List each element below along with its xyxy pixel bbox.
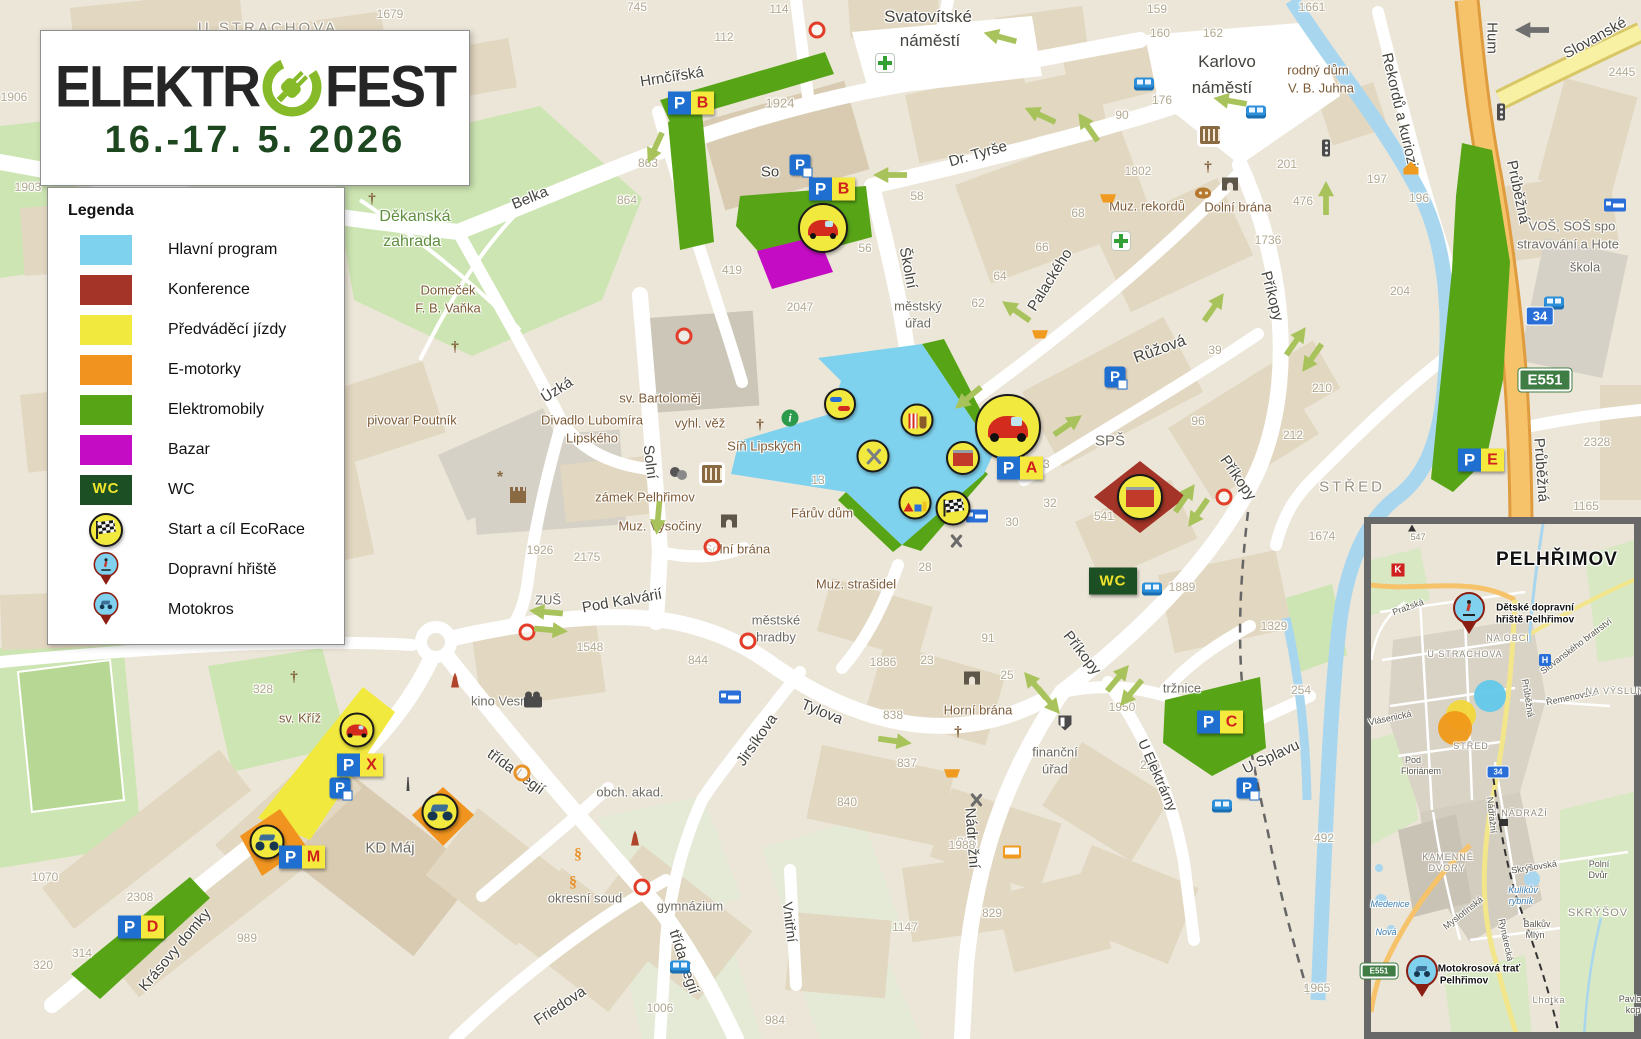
parking-marker-A: PA (997, 457, 1043, 480)
map-label: 1147 (892, 920, 918, 934)
parking-letter: M (302, 846, 325, 869)
tower-icon (451, 673, 459, 688)
event-circle-car (975, 394, 1041, 460)
map-label: SKRÝŠOV (1568, 907, 1628, 919)
map-label: 838 (883, 708, 903, 722)
map-label: 25 (1000, 668, 1013, 682)
map-label: 1070 (32, 870, 59, 884)
parking-marker-M: PM (279, 846, 325, 869)
event-circle-car (340, 713, 375, 748)
map-label: pivovar Poutník (367, 413, 457, 428)
parking-marker-D: PD (118, 916, 164, 939)
cross-icon: † (954, 726, 962, 741)
summit-icon (1408, 525, 1416, 532)
map-label: 1889 (1169, 580, 1196, 594)
map-label: 1965 (1304, 981, 1331, 995)
map-label: 30 (1005, 515, 1018, 529)
event-circle-moto (422, 794, 459, 831)
no-entry-ring (1216, 489, 1233, 506)
map-label: 419 (722, 263, 742, 277)
map-label: Motokrosová trať (1438, 964, 1521, 975)
legend-swatch-conference (80, 275, 132, 305)
legend-swatch-main-program (80, 235, 132, 265)
map-label: Lhotka (1532, 995, 1565, 1005)
cross-icon: † (1204, 161, 1212, 176)
traffic-playground-pin (1452, 592, 1486, 638)
map-label: hradby (756, 630, 796, 645)
map-label: U STRACHOVA (1427, 649, 1502, 659)
map-label: gymnázium (657, 899, 723, 914)
map-label: 476 (1293, 194, 1313, 208)
map-label: náměstí (900, 31, 960, 51)
map-label: 1548 (577, 640, 604, 654)
map-label: Pod (1405, 755, 1421, 765)
parking-marker-B: PB (668, 92, 714, 115)
map-label: Síň Lipských (727, 439, 801, 454)
legend-swatch-test-rides (80, 315, 132, 345)
event-circle-flag (936, 491, 971, 526)
map-label: Příkopy (1060, 628, 1105, 679)
map-label: 314 (72, 946, 92, 960)
map-label: městské (752, 613, 800, 628)
map-label: Domeček (421, 283, 476, 298)
map-label: Polní (1589, 859, 1610, 869)
map-label: Růžová (1131, 332, 1188, 367)
no-entry-ring (514, 765, 531, 782)
basket-icon (1100, 192, 1116, 203)
direction-arrow (1021, 101, 1059, 130)
map-label: 197 (1367, 172, 1387, 186)
legend-item-label: Konference (168, 281, 250, 299)
direction-arrow (1072, 108, 1105, 145)
castle-icon (510, 491, 526, 503)
map-label: 32 (1043, 496, 1056, 510)
no-entry-ring (740, 633, 757, 650)
legend-item-label: Hlavní program (168, 241, 277, 259)
motocross-pin (93, 592, 120, 628)
map-label: 864 (617, 193, 637, 207)
parking-letter: A (1020, 457, 1043, 480)
map-label: Vlásenická (1368, 709, 1413, 728)
shield-icon (1059, 716, 1072, 731)
gate-icon (964, 672, 980, 685)
map-label: V. B. Juhna (1288, 81, 1354, 96)
parking-p-icon: P (1458, 449, 1481, 472)
parking-p-icon: P (668, 92, 691, 115)
traffic-playground-pin (93, 552, 120, 588)
map-label: 2328 (1584, 435, 1611, 449)
star-icon: * (497, 470, 503, 486)
map-label: 114 (769, 2, 788, 16)
event-circle-toys (899, 487, 932, 520)
section-icon: § (569, 875, 577, 891)
map-label: 2445 (1609, 65, 1636, 79)
cross-icon: † (368, 193, 376, 208)
map-label: Myslotínská (1441, 894, 1485, 931)
road-badge-H: H (1539, 654, 1551, 666)
map-label: 68 (1071, 206, 1084, 220)
map-label: VOŠ, SOŠ spo (1529, 219, 1616, 234)
map-label: Rynárecká (1497, 918, 1516, 962)
pharm-icon (876, 54, 894, 72)
legend-item: Motokros (68, 590, 344, 630)
tower-icon (631, 831, 639, 846)
legend-item: Konference (68, 270, 344, 310)
road-badge-K: K (1392, 564, 1405, 577)
map-label: Pražská (1391, 597, 1425, 618)
map-label: Úzká (538, 374, 576, 407)
parking-marker-E: PE (1458, 449, 1504, 472)
bed-icon (719, 691, 741, 704)
map-label: STŘED (1453, 741, 1489, 751)
map-label: Příkopy (1257, 269, 1287, 323)
rest-icon (947, 533, 963, 549)
map-label: Lipského (566, 431, 618, 446)
theater-icon (670, 467, 680, 477)
map-label: NA VÝSLUNÍ (1585, 686, 1641, 696)
map-label: Vnitřní (780, 901, 801, 943)
map-label: U Splavu (1240, 736, 1302, 777)
map-label: Hum (1484, 22, 1501, 54)
ecorace-start-icon (80, 511, 132, 549)
map-label: Floriánem (1401, 766, 1441, 776)
gate-icon (1222, 178, 1238, 191)
map-label: Průběžná (1530, 437, 1551, 502)
legend-item-label: Start a cíl EcoRace (168, 521, 305, 539)
map-label: 328 (253, 682, 273, 696)
legend-item: Start a cíl EcoRace (68, 510, 344, 550)
map-label: 840 (837, 795, 857, 809)
map-label: 39 (1208, 343, 1221, 357)
map-label: městský (894, 299, 942, 314)
map-label: Hrnčířská (639, 64, 705, 91)
map-label: 1661 (1299, 0, 1326, 14)
bus-icon (1142, 583, 1162, 596)
legend-item-label: Dopravní hřiště (168, 561, 277, 579)
basket-icon (944, 767, 960, 778)
monitor-icon (1003, 846, 1021, 859)
legend-title: Legenda (68, 202, 344, 220)
map-label: 196 (1409, 191, 1429, 205)
bed-icon (1604, 199, 1626, 212)
map-label: Jirsíkova (733, 711, 781, 769)
direction-arrow (1318, 181, 1334, 215)
section-icon: § (574, 847, 582, 863)
map-label: Balkův (1523, 919, 1550, 929)
map-label: Horní brána (944, 703, 1013, 718)
map-label: 1006 (647, 1001, 674, 1015)
map-label: U Elektrárny (1135, 737, 1181, 814)
map-label: STŘED (1319, 479, 1385, 496)
map-label: Pod Kalvárií (581, 586, 664, 617)
map-label: SPŠ (1095, 433, 1125, 450)
legend-item: Hlavní program (68, 230, 344, 270)
legend-wc-badge: WC (80, 475, 132, 505)
map-label: 160 (1150, 26, 1170, 40)
map-label: 90 (1115, 108, 1128, 122)
map-label: zámek Pelhřimov (595, 490, 695, 505)
parking-marker-B: PB (809, 178, 855, 201)
parking-letter: D (141, 916, 164, 939)
no-entry-ring (704, 539, 721, 556)
map-label: 254 (1291, 683, 1311, 697)
motocross-pin (80, 591, 132, 629)
legend-item: Elektromobily (68, 390, 344, 430)
map-label: vyhl. věž (675, 416, 726, 431)
map-label: Karlovo (1198, 52, 1256, 72)
event-circle-flag (89, 513, 123, 547)
map-label: 837 (897, 756, 917, 770)
info-icon: i (782, 410, 799, 427)
pharm-icon (1112, 232, 1130, 250)
map-label: stravování a Hote (1517, 237, 1619, 252)
event-title: ELEKTR FEST (55, 56, 455, 118)
map-label: 162 (1203, 26, 1223, 40)
direction-arrow (877, 731, 913, 752)
map-label: NA OBCI (1486, 633, 1530, 643)
map-label: 204 (1390, 284, 1410, 298)
map-label: Skrýšovská (1510, 858, 1557, 875)
direction-arrow (1049, 409, 1086, 442)
logo-text-right: FEST (325, 58, 455, 116)
map-label: 541 (1094, 509, 1114, 523)
map-label: rodný dům (1287, 63, 1348, 78)
parking-letter: C (1220, 711, 1243, 734)
moto-icon (1411, 960, 1433, 982)
pretzel-icon (1195, 188, 1211, 199)
plug-icon (261, 56, 323, 118)
direction-arrow (1280, 322, 1313, 359)
direction-arrow (533, 621, 568, 640)
map-label: 745 (627, 0, 647, 14)
map-label: Pavlo (1619, 994, 1641, 1004)
map-label: Fárův dům (791, 506, 853, 521)
legend-swatch-e-motorbikes (80, 355, 132, 385)
map-label: 210 (1312, 381, 1332, 395)
road-badge-34: 34 (1526, 307, 1554, 326)
event-circle-food (901, 404, 934, 437)
paid-parking-icon: P (1237, 778, 1258, 799)
logo-text-left: ELEKTR (55, 58, 259, 116)
map-label: 159 (1147, 2, 1167, 16)
legend-item-label: Elektromobily (168, 401, 264, 419)
paid-parking-icon: P (790, 155, 811, 176)
legend: Legenda Hlavní programKonferencePředvádě… (47, 187, 345, 645)
cross-icon: † (290, 671, 298, 686)
museum-icon (702, 465, 722, 483)
rest-icon (967, 792, 983, 808)
map-label: 989 (237, 931, 257, 945)
map-label: 96 (1191, 414, 1204, 428)
museum-icon (1200, 126, 1220, 144)
elektrofest-map-flyer: U STRACHOVA1679745112114Svatovítskénáměs… (0, 0, 1641, 1039)
parking-letter: B (832, 178, 855, 201)
map-label: Nádražní (1485, 796, 1499, 833)
cross-icon: † (451, 341, 459, 356)
map-label: rybník (1509, 896, 1534, 906)
parking-p-icon: P (118, 916, 141, 939)
direction-arrow (1198, 288, 1231, 325)
cross-icon: † (756, 419, 764, 434)
gate-icon (721, 515, 737, 528)
parking-p-icon: P (337, 754, 360, 777)
motocross-pin (1405, 955, 1439, 1001)
legend-item-label: Bazar (168, 441, 210, 459)
direction-arrow (873, 167, 907, 183)
event-circle-car (798, 203, 848, 253)
legend-item-label: Předváděcí jízdy (168, 321, 286, 339)
map-label: Průběžná (1520, 678, 1536, 718)
map-label: 844 (688, 653, 708, 667)
map-label: DVORY (1429, 863, 1466, 873)
map-label: Nová (1375, 927, 1396, 937)
map-label: U NÁDRAŽÍ (1490, 808, 1548, 818)
map-label: Divadlo Lubomíra (541, 413, 643, 428)
map-label: Kulíkův (1508, 885, 1538, 895)
map-label: 1165 (1573, 499, 1599, 513)
legend-item: Předváděcí jízdy (68, 310, 344, 350)
map-label: 1926 (527, 543, 554, 557)
map-label: zahrada (383, 233, 441, 251)
parking-p-icon: P (809, 178, 832, 201)
bus-icon (1246, 106, 1266, 119)
map-label: 492 (1314, 831, 1334, 845)
map-label: Pelhřimov (1440, 976, 1488, 987)
scooter-icon (1458, 597, 1480, 619)
legend-item-label: E-motorky (168, 361, 241, 379)
map-label: sv. Kříž (279, 711, 321, 726)
bus-icon (1134, 78, 1154, 91)
wc-badge: WC (1089, 568, 1137, 595)
map-label: ZUŠ (535, 593, 561, 608)
map-label: 829 (982, 906, 1002, 920)
no-entry-ring (676, 328, 693, 345)
map-label: F. B. Vaňka (415, 301, 481, 316)
traffic-playground-pin (80, 551, 132, 589)
map-label: Palackého (1024, 246, 1076, 314)
map-label: Slovanské (1561, 14, 1630, 62)
map-label: 2047 (787, 300, 814, 314)
map-label: finanční (1032, 745, 1078, 760)
map-label: Muz. rekordů (1109, 199, 1185, 214)
event-circle-toycar (824, 388, 856, 420)
parking-letter: E (1481, 449, 1504, 472)
map-label: KAMENNÉ (1422, 852, 1474, 862)
map-label: Friedova (531, 983, 589, 1029)
no-entry-ring (634, 879, 651, 896)
map-label: úřad (1042, 762, 1068, 777)
map-label: 1886 (870, 655, 897, 669)
map-label: kop (1626, 1005, 1641, 1015)
map-label: 1924 (766, 96, 795, 111)
event-date: 16.-17. 5. 2026 (105, 120, 406, 160)
map-label: 23 (920, 653, 933, 667)
map-label: 1736 (1255, 233, 1282, 247)
map-label: Rekordů a kuriozit (1378, 51, 1422, 173)
map-label: Dětské dopravní (1496, 603, 1574, 614)
legend-swatch-bazaar (80, 435, 132, 465)
map-label: 320 (33, 958, 53, 972)
legend-items: Hlavní programKonferencePředváděcí jízdy… (68, 230, 344, 630)
legend-item-label: Motokros (168, 601, 234, 619)
parking-letter: B (691, 92, 714, 115)
parking-marker-X: PX (337, 754, 383, 777)
map-label: hřiště Pelhřimov (1496, 615, 1574, 626)
map-label: Solní (639, 444, 660, 480)
map-label: 1903 (15, 180, 42, 194)
road-badge-E551: E551 (1518, 369, 1571, 392)
map-label: So (761, 164, 779, 181)
map-label: Dr. Tyrše (947, 138, 1009, 171)
map-label: 1679 (377, 7, 404, 21)
map-label: Dvůr (1588, 870, 1607, 880)
map-label: Medenice (1370, 899, 1409, 909)
moto-icon (97, 596, 114, 613)
legend-item-label: WC (168, 481, 195, 499)
legend-item: Dopravní hřiště (68, 550, 344, 590)
map-label: 64 (993, 269, 1006, 283)
bus-icon (670, 961, 690, 974)
map-label: 56 (858, 241, 871, 255)
map-label: 58 (910, 189, 923, 203)
map-label: 66 (1035, 240, 1048, 254)
map-label: okresní soud (548, 891, 622, 906)
direction-arrow (1515, 22, 1549, 38)
map-label: 13 (811, 473, 824, 487)
map-label: 2308 (127, 890, 154, 904)
map-label: náměstí (1192, 78, 1252, 98)
event-circle-tools (857, 440, 890, 473)
direction-arrow (1296, 339, 1329, 376)
legend-item: WCWC (68, 470, 344, 510)
map-label: Mlýn (1525, 930, 1544, 940)
event-circle-stage (946, 441, 980, 475)
bus-icon (1212, 800, 1232, 813)
map-label: Muz. strašidel (816, 577, 896, 592)
legend-item: E-motorky (68, 350, 344, 390)
parking-letter: X (360, 754, 383, 777)
map-label: Školní (896, 246, 921, 290)
paid-parking-icon: P (1105, 367, 1126, 388)
no-entry-ring (519, 624, 536, 641)
parking-marker-C: PC (1197, 711, 1243, 734)
map-label: 984 (765, 1013, 785, 1027)
map-label: škola (1570, 260, 1600, 275)
parking-p-icon: P (997, 457, 1020, 480)
map-label: 1988 (949, 838, 976, 852)
event-logo: ELEKTR FEST 16.-17. 5. 2026 (40, 30, 470, 186)
map-label: Tylova (799, 696, 846, 728)
legend-swatch-electric-cars (80, 395, 132, 425)
traffic-icon (1497, 104, 1505, 121)
map-label: 1674 (1309, 529, 1336, 543)
traffic-icon (1322, 140, 1330, 157)
scooter-icon (97, 556, 114, 573)
map-label: Belka (509, 183, 550, 213)
map-label: 2175 (574, 550, 601, 564)
road-badge-E551: E551 (1361, 964, 1398, 979)
paid-parking-icon: P (330, 778, 351, 799)
map-label: Dolní brána (1204, 200, 1271, 215)
direction-arrow (982, 25, 1019, 49)
map-label: 176 (1152, 93, 1172, 107)
map-label: 1329 (1261, 619, 1288, 633)
map-label: 91 (981, 631, 994, 645)
basket-icon (1032, 328, 1048, 339)
map-label: 1906 (1, 90, 28, 104)
legend-item: Bazar (68, 430, 344, 470)
map-label: 112 (714, 30, 733, 44)
